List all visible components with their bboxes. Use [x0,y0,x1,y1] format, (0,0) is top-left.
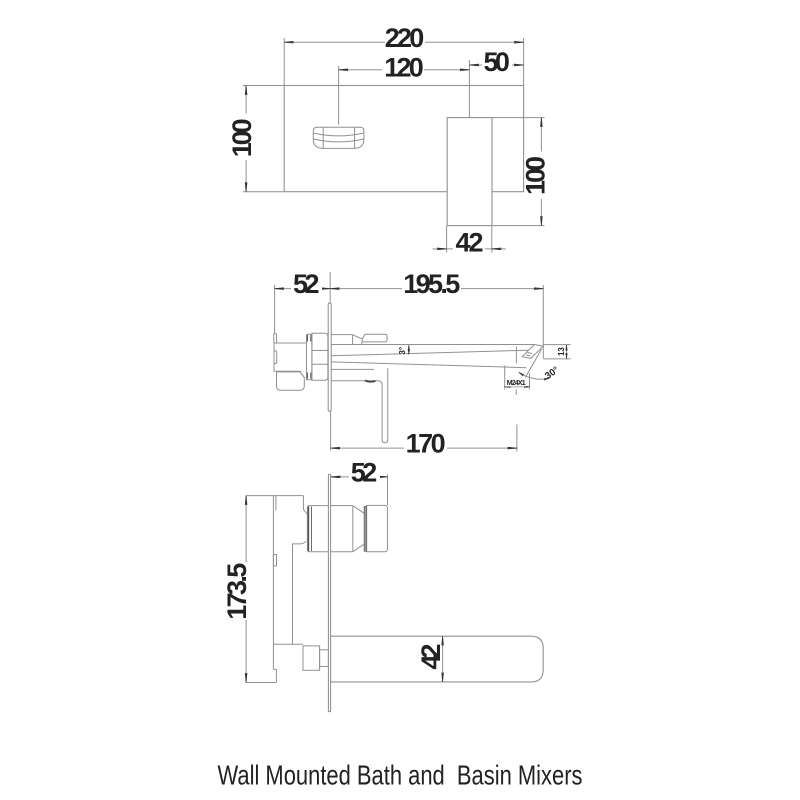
svg-text:50: 50 [483,47,510,77]
svg-text:Wall Mounted Bath and Basin M: Wall Mounted Bath and Basin Mixers [218,760,583,791]
svg-text:170: 170 [406,428,446,458]
svg-text:M24X1: M24X1 [507,380,526,387]
svg-text:120: 120 [384,52,424,82]
svg-text:100: 100 [227,118,257,157]
svg-text:52: 52 [351,457,378,487]
svg-text:220: 220 [385,23,425,53]
svg-text:52: 52 [293,269,320,299]
svg-text:3°: 3° [398,347,407,355]
svg-text:195.5: 195.5 [403,269,460,299]
svg-text:100: 100 [520,156,550,195]
svg-text:173.5: 173.5 [222,563,252,620]
svg-text:42: 42 [416,644,446,670]
svg-text:42: 42 [456,227,484,257]
svg-text:13: 13 [557,347,566,356]
